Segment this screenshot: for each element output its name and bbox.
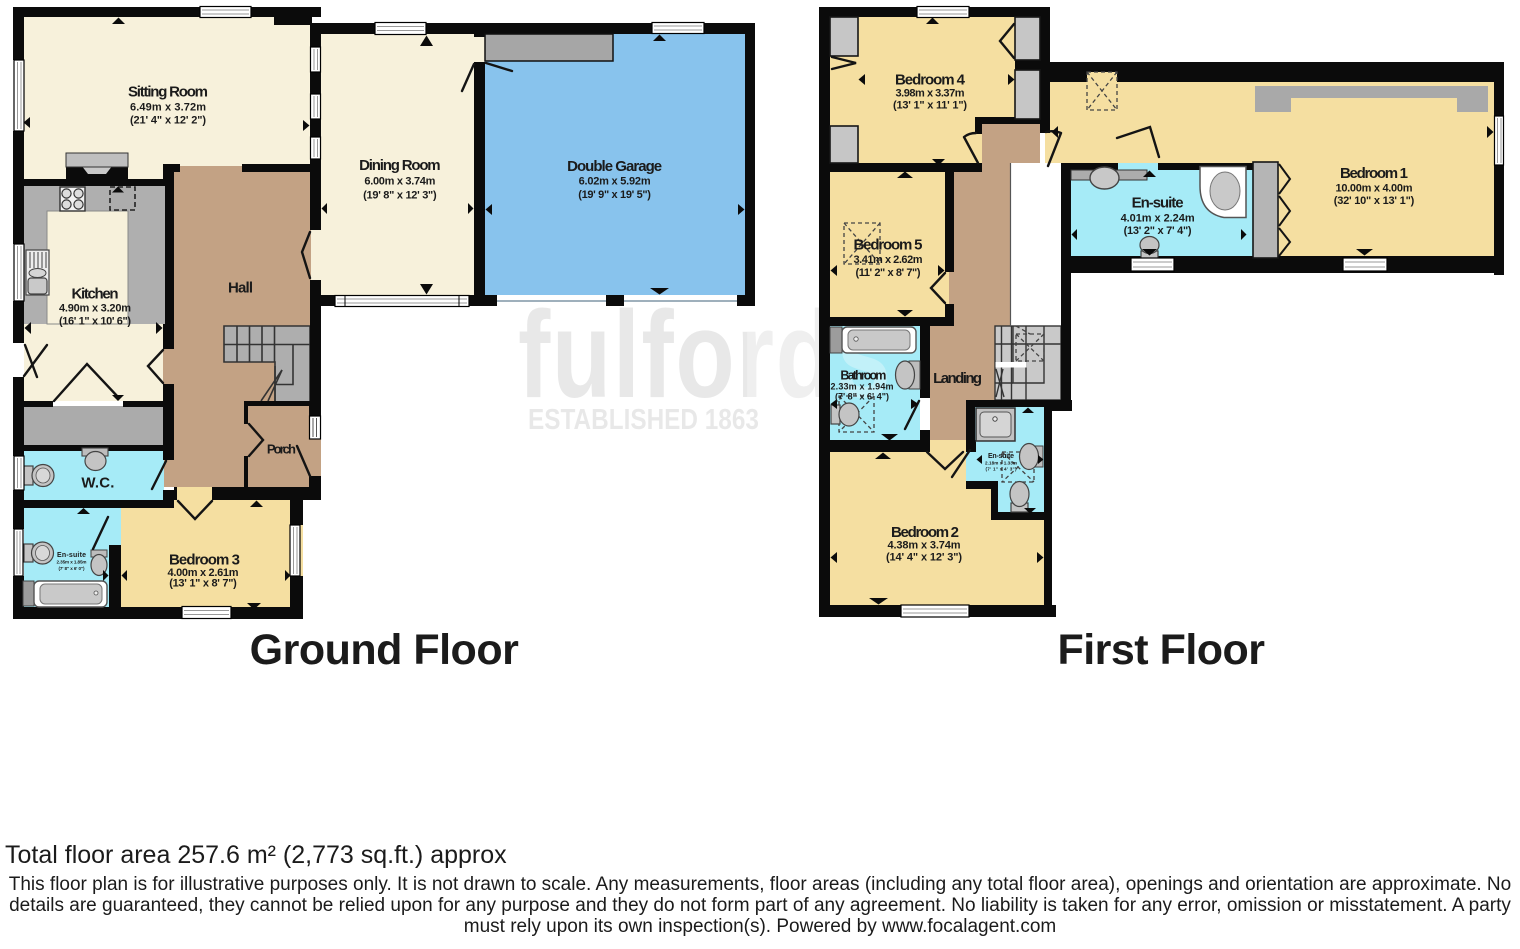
- svg-text:Bedroom 3: Bedroom 3: [169, 552, 240, 569]
- svg-text:2.35m x 1.85m: 2.35m x 1.85m: [57, 560, 87, 565]
- svg-text:First Floor: First Floor: [1057, 626, 1265, 674]
- svg-text:(19' 8" x 12' 3"): (19' 8" x 12' 3"): [363, 189, 437, 201]
- svg-text:Dining Room: Dining Room: [359, 157, 441, 174]
- svg-text:6.49m x 3.72m: 6.49m x 3.72m: [130, 102, 206, 114]
- svg-text:(7' 8" x 6' 4"): (7' 8" x 6' 4"): [835, 392, 889, 402]
- svg-text:6.02m x 5.92m: 6.02m x 5.92m: [579, 176, 651, 188]
- svg-text:(16' 1" x 10' 6"): (16' 1" x 10' 6"): [59, 315, 131, 327]
- svg-text:must rely upon its own inspect: must rely upon its own inspection(s). Po…: [464, 916, 1056, 937]
- svg-text:Landing: Landing: [933, 370, 982, 387]
- svg-text:Double Garage: Double Garage: [567, 158, 662, 175]
- svg-text:Bathroom: Bathroom: [840, 368, 886, 382]
- svg-text:3.41m x 2.62m: 3.41m x 2.62m: [854, 254, 923, 266]
- svg-text:(13' 1" x 8' 7"): (13' 1" x 8' 7"): [169, 578, 237, 590]
- svg-text:4.01m x 2.24m: 4.01m x 2.24m: [1121, 213, 1195, 225]
- svg-text:En-suite: En-suite: [988, 453, 1014, 460]
- svg-text:2.18m x 1.33m: 2.18m x 1.33m: [985, 461, 1017, 466]
- svg-text:Porch: Porch: [267, 442, 296, 457]
- svg-text:This floor plan is for illustr: This floor plan is for illustrative purp…: [9, 874, 1511, 895]
- svg-text:W.C.: W.C.: [81, 475, 114, 492]
- svg-text:(11' 2" x 8' 7"): (11' 2" x 8' 7"): [856, 267, 921, 279]
- svg-text:(21' 4" x 12' 2"): (21' 4" x 12' 2"): [130, 115, 206, 127]
- svg-text:Hall: Hall: [228, 279, 253, 296]
- svg-text:(32' 10" x 13' 1"): (32' 10" x 13' 1"): [1334, 195, 1415, 207]
- svg-text:(7' 1" x 4' 3"): (7' 1" x 4' 3"): [986, 467, 1017, 472]
- svg-text:Ground Floor: Ground Floor: [250, 626, 519, 674]
- svg-text:Kitchen: Kitchen: [72, 286, 119, 303]
- svg-text:(7' 8" x 6' 0"): (7' 8" x 6' 0"): [59, 566, 85, 571]
- svg-text:10.00m x 4.00m: 10.00m x 4.00m: [1336, 183, 1413, 195]
- svg-text:(19' 9" x 19' 5"): (19' 9" x 19' 5"): [578, 189, 651, 201]
- svg-text:Bedroom 5: Bedroom 5: [854, 236, 923, 253]
- svg-text:Bedroom 4: Bedroom 4: [895, 72, 966, 89]
- svg-text:4.38m x 3.74m: 4.38m x 3.74m: [888, 540, 961, 552]
- svg-text:4.90m x 3.20m: 4.90m x 3.20m: [59, 303, 131, 315]
- svg-text:3.98m x 3.37m: 3.98m x 3.37m: [896, 88, 965, 100]
- svg-text:Bedroom 1: Bedroom 1: [1340, 165, 1408, 182]
- svg-text:Total floor area 257.6 m² (2,7: Total floor area 257.6 m² (2,773 sq.ft.)…: [5, 841, 507, 869]
- svg-text:En-suite: En-suite: [57, 552, 86, 559]
- svg-text:ESTABLISHED 1863: ESTABLISHED 1863: [528, 403, 759, 435]
- svg-text:6.00m x 3.74m: 6.00m x 3.74m: [364, 176, 435, 188]
- svg-text:En-suite: En-suite: [1132, 194, 1184, 211]
- svg-text:2.33m x 1.94m: 2.33m x 1.94m: [831, 382, 894, 392]
- svg-text:(13' 2" x 7' 4"): (13' 2" x 7' 4"): [1124, 225, 1192, 237]
- svg-text:(13' 1" x 11' 1"): (13' 1" x 11' 1"): [893, 100, 967, 112]
- svg-text:(14' 4" x 12' 3"): (14' 4" x 12' 3"): [886, 552, 962, 564]
- svg-text:Bedroom 2: Bedroom 2: [891, 524, 959, 541]
- svg-text:Sitting Room: Sitting Room: [128, 84, 208, 101]
- svg-text:details are guaranteed, they c: details are guaranteed, they cannot be r…: [9, 895, 1511, 916]
